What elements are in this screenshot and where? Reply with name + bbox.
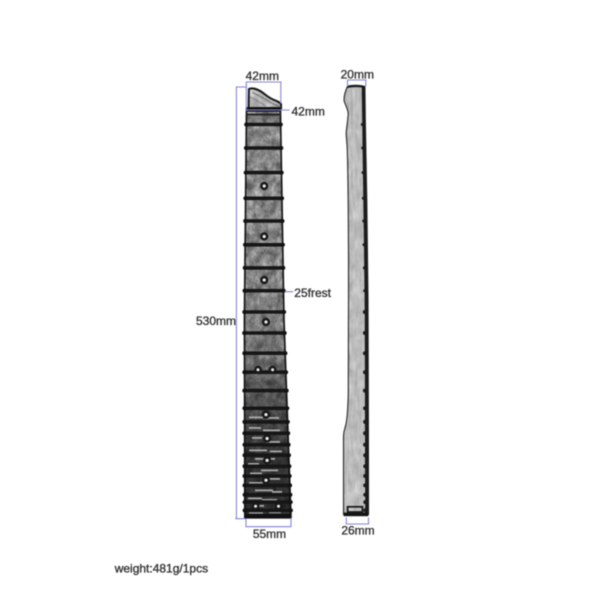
svg-text:20mm: 20mm [341, 67, 374, 81]
svg-text:weight:481g/1pcs: weight:481g/1pcs [114, 561, 208, 575]
svg-text:25frest: 25frest [294, 286, 331, 300]
svg-text:42mm: 42mm [246, 69, 279, 83]
svg-text:530mm: 530mm [196, 314, 236, 328]
svg-text:55mm: 55mm [253, 527, 286, 541]
svg-text:26mm: 26mm [341, 524, 374, 538]
svg-text:42mm: 42mm [292, 105, 325, 119]
